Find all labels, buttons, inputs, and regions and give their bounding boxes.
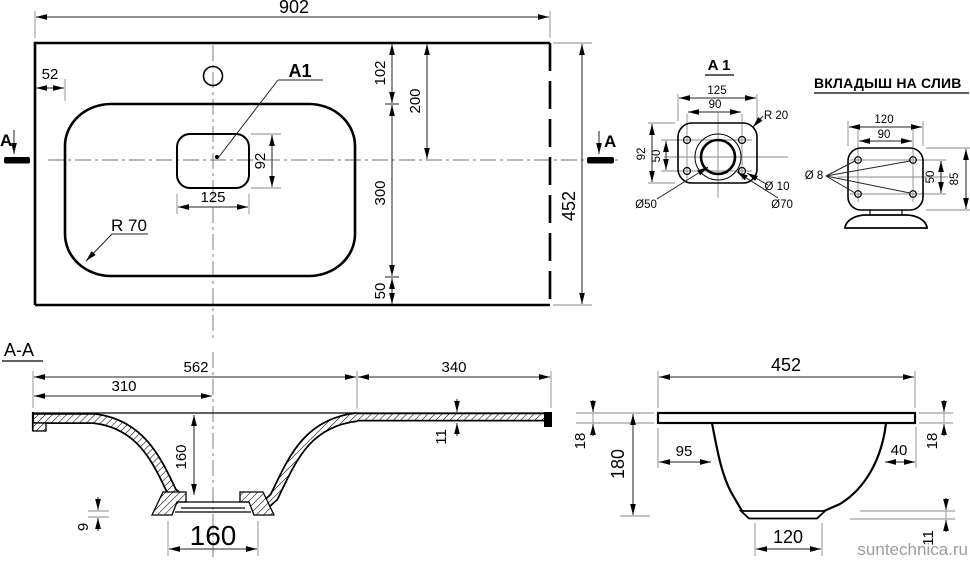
dim-side-180: 180: [608, 449, 628, 479]
dim-ins-50: 50: [925, 171, 937, 184]
dim-52: 52: [42, 66, 59, 83]
drawing-canvas: A A 902 52 A1 102 200 300 50 452 92 125 …: [0, 0, 970, 562]
section-aa-view: A-A 562: [2, 340, 552, 558]
dim-92: 92: [252, 153, 269, 170]
dim-160-depth: 160: [173, 444, 190, 469]
detail-a1-view: A 1 125 90 92 50 R 20 Ø 10 Ø50 Ø70: [635, 57, 793, 211]
side-bowl: [712, 423, 886, 519]
dim-102: 102: [372, 60, 389, 85]
detail-a1-title: A 1: [708, 57, 731, 74]
dim-50: 50: [372, 283, 389, 300]
dim-11: 11: [433, 429, 450, 445]
plan-view: A A 902 52 A1 102 200 300 50 452 92 125 …: [0, 0, 618, 340]
section-marker-bar: [587, 157, 614, 164]
dim-902: 902: [279, 0, 309, 17]
side-dimension-lines: [593, 377, 946, 549]
section-aa-material: [33, 412, 552, 515]
watermark: suntechnica.ru: [857, 540, 968, 559]
insert-foot: [845, 210, 927, 228]
dim-9: 9: [75, 523, 92, 531]
detail-a1-leaders: [657, 116, 778, 199]
dim-300: 300: [372, 180, 389, 205]
dim-side-18-right: 18: [924, 433, 941, 450]
circle-dia-70: Ø70: [771, 199, 793, 211]
dim-310: 310: [111, 378, 136, 395]
dim-a1-50: 50: [651, 150, 663, 163]
dim-side-452: 452: [771, 355, 801, 375]
radius-r70: R 70: [111, 216, 147, 235]
section-marker-bar: [4, 157, 30, 164]
insert-centerlines: [838, 121, 970, 210]
insert-title: ВКЛАДЫШ НА СЛИВ: [814, 75, 962, 91]
insert-dimension-lines: [849, 127, 966, 209]
detail-callout-a1: A1: [288, 61, 311, 81]
side-section-view: 452 18 180 95 40 18 11 120: [572, 355, 955, 556]
dim-side-18-left: 18: [572, 433, 589, 450]
dim-ins-120: 120: [874, 114, 893, 126]
dim-562: 562: [183, 359, 208, 376]
radius-r20: R 20: [764, 110, 788, 122]
drain-insert-view: ВКЛАДЫШ НА СЛИВ 120 90 Ø 8 50 85: [805, 75, 970, 228]
countertop-outline: [35, 43, 550, 305]
side-slab: [658, 413, 915, 423]
plan-centerlines: [48, 45, 618, 340]
section-cut-marker-left: A: [0, 130, 30, 164]
section-cut-marker-right: A: [587, 131, 616, 164]
dim-452: 452: [559, 191, 579, 221]
technical-drawing-sheet: A A 902 52 A1 102 200 300 50 452 92 125 …: [0, 0, 970, 562]
dim-side-95: 95: [676, 443, 693, 460]
hole-dia-8: Ø 8: [805, 170, 824, 182]
section-aa-title: A-A: [4, 340, 34, 360]
dim-160-drain: 160: [190, 520, 237, 551]
dim-side-40: 40: [891, 442, 908, 459]
hole-dia-10: Ø 10: [765, 181, 790, 193]
dim-340: 340: [441, 359, 466, 376]
dim-a1-90: 90: [709, 99, 722, 111]
section-letter-left: A: [0, 131, 12, 150]
plan-extension-lines: [35, 11, 592, 305]
dim-ins-85: 85: [949, 173, 961, 186]
circle-dia-50: Ø50: [635, 199, 657, 211]
dim-125: 125: [200, 189, 225, 206]
section-letter-right: A: [604, 132, 616, 151]
dim-200: 200: [407, 88, 424, 113]
dim-a1-92: 92: [636, 148, 648, 161]
dim-a1-125: 125: [707, 85, 726, 97]
dim-ins-90: 90: [878, 129, 891, 141]
dim-side-120: 120: [773, 527, 803, 547]
